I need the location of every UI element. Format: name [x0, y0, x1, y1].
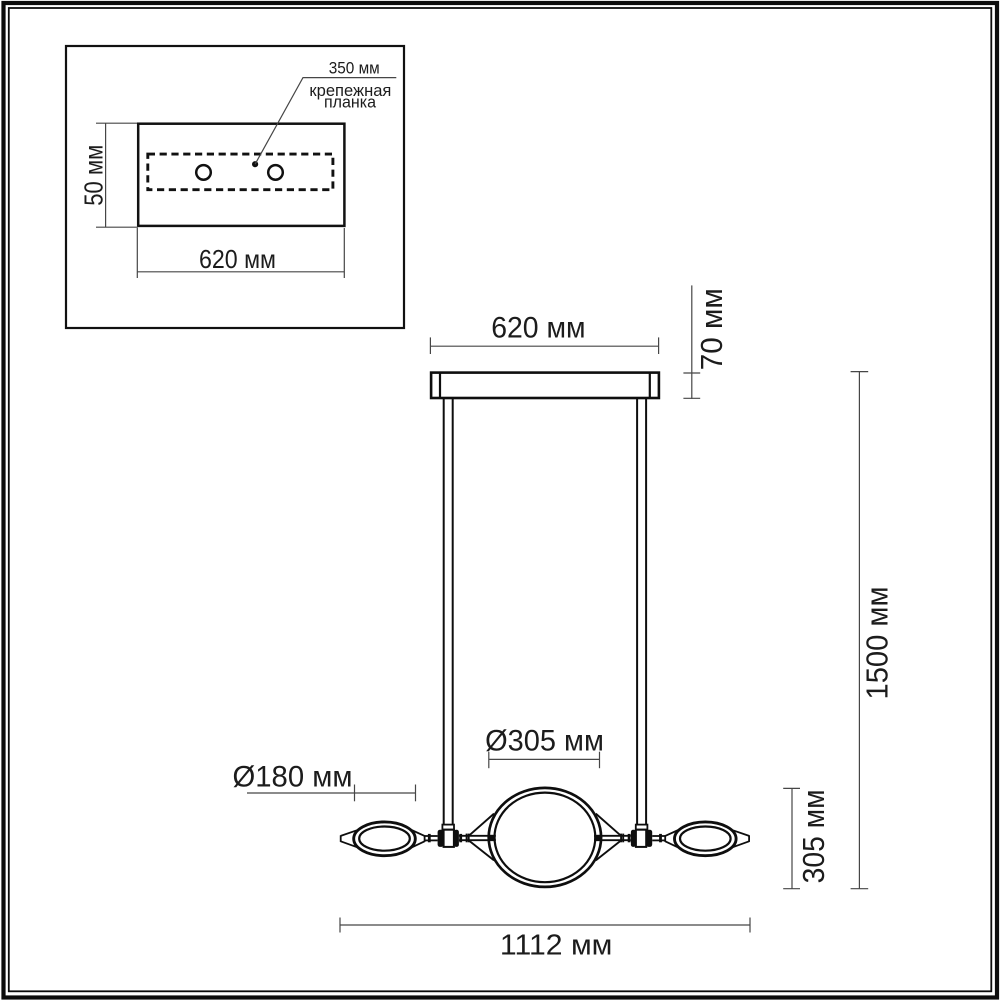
svg-text:305 мм: 305 мм — [796, 789, 831, 883]
svg-text:50 мм: 50 мм — [78, 145, 108, 206]
svg-text:планка: планка — [324, 93, 377, 111]
svg-text:1500 мм: 1500 мм — [860, 587, 895, 700]
svg-text:Ø180 мм: Ø180 мм — [233, 760, 353, 793]
svg-text:620 мм: 620 мм — [199, 244, 276, 274]
svg-text:620 мм: 620 мм — [491, 312, 585, 345]
svg-text:350 мм: 350 мм — [329, 60, 380, 78]
svg-text:1112 мм: 1112 мм — [500, 930, 613, 962]
svg-text:Ø305 мм: Ø305 мм — [485, 725, 604, 758]
svg-text:70 мм: 70 мм — [694, 288, 729, 370]
